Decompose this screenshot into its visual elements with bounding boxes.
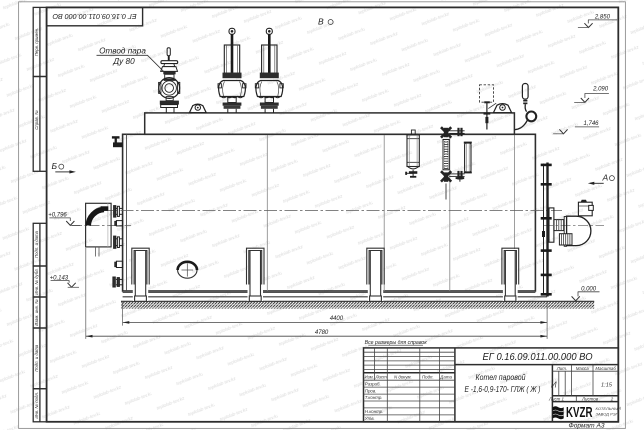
- svg-text:ЗАВОД РЭП: ЗАВОД РЭП: [596, 412, 619, 417]
- svg-text:Дата: Дата: [439, 375, 452, 380]
- svg-text:Инв. № подл.: Инв. № подл.: [34, 392, 39, 419]
- svg-text:И: И: [551, 380, 557, 389]
- svg-text:4400: 4400: [330, 316, 344, 322]
- svg-text:КОТЕЛЬНЫЙ: КОТЕЛЬНЫЙ: [596, 406, 621, 411]
- svg-text:Взам. инв. №: Взам. инв. №: [34, 299, 39, 326]
- svg-text:А: А: [602, 173, 609, 183]
- svg-text:Котел паровой: Котел паровой: [476, 373, 526, 382]
- svg-text:2,090: 2,090: [592, 87, 609, 93]
- svg-text:1,746: 1,746: [583, 121, 599, 127]
- svg-text:Листов: Листов: [581, 396, 599, 401]
- svg-text:Пров.: Пров.: [365, 388, 377, 393]
- svg-text:Т.контр.: Т.контр.: [365, 395, 383, 400]
- svg-text:ЕГ 0.16.09.011.00.000 ВО: ЕГ 0.16.09.011.00.000 ВО: [483, 352, 593, 363]
- svg-text:Подп.: Подп.: [422, 375, 434, 380]
- svg-text:Б: Б: [52, 161, 58, 171]
- svg-text:Изм.: Изм.: [365, 375, 374, 380]
- svg-text:2: 2: [610, 396, 614, 401]
- svg-text:Отвод пара: Отвод пара: [99, 46, 146, 55]
- svg-text:Лист: Лист: [375, 375, 388, 380]
- svg-text:Ду 80: Ду 80: [112, 57, 135, 66]
- svg-text:Лист 1: Лист 1: [548, 396, 565, 401]
- svg-text:KVZR: KVZR: [566, 405, 593, 421]
- svg-text:Масштаб: Масштаб: [595, 366, 616, 371]
- svg-text:Масса: Масса: [576, 366, 590, 371]
- svg-text:Все размеры для справок: Все размеры для справок: [365, 340, 428, 346]
- svg-text:Лит.: Лит.: [556, 366, 567, 371]
- svg-text:Н.контр.: Н.контр.: [365, 409, 384, 414]
- svg-text:4780: 4780: [315, 330, 329, 336]
- svg-text:Подп. и дата: Подп. и дата: [34, 344, 39, 372]
- svg-text:Формат А3: Формат А3: [568, 423, 604, 430]
- svg-text:Разраб.: Разраб.: [365, 381, 381, 386]
- svg-text:Подп. и дата: Подп. и дата: [34, 230, 39, 258]
- svg-text:+0,796: +0,796: [48, 212, 67, 218]
- svg-text:Утв.: Утв.: [365, 416, 375, 421]
- svg-text:Е -1,6-0,9-170- ГЛЖ ( Ж ): Е -1,6-0,9-170- ГЛЖ ( Ж ): [465, 385, 541, 394]
- svg-text:Справ. №: Справ. №: [34, 110, 39, 130]
- svg-text:Перв. примен.: Перв. примен.: [34, 28, 39, 57]
- svg-text:Инв. № дубл.: Инв. № дубл.: [34, 268, 39, 294]
- svg-text:ЕГ 0.16.09.011.00.000 ВО: ЕГ 0.16.09.011.00.000 ВО: [53, 12, 137, 21]
- svg-text:1:15: 1:15: [601, 383, 613, 389]
- svg-text:В: В: [318, 17, 324, 27]
- svg-text:N докум.: N докум.: [394, 375, 412, 380]
